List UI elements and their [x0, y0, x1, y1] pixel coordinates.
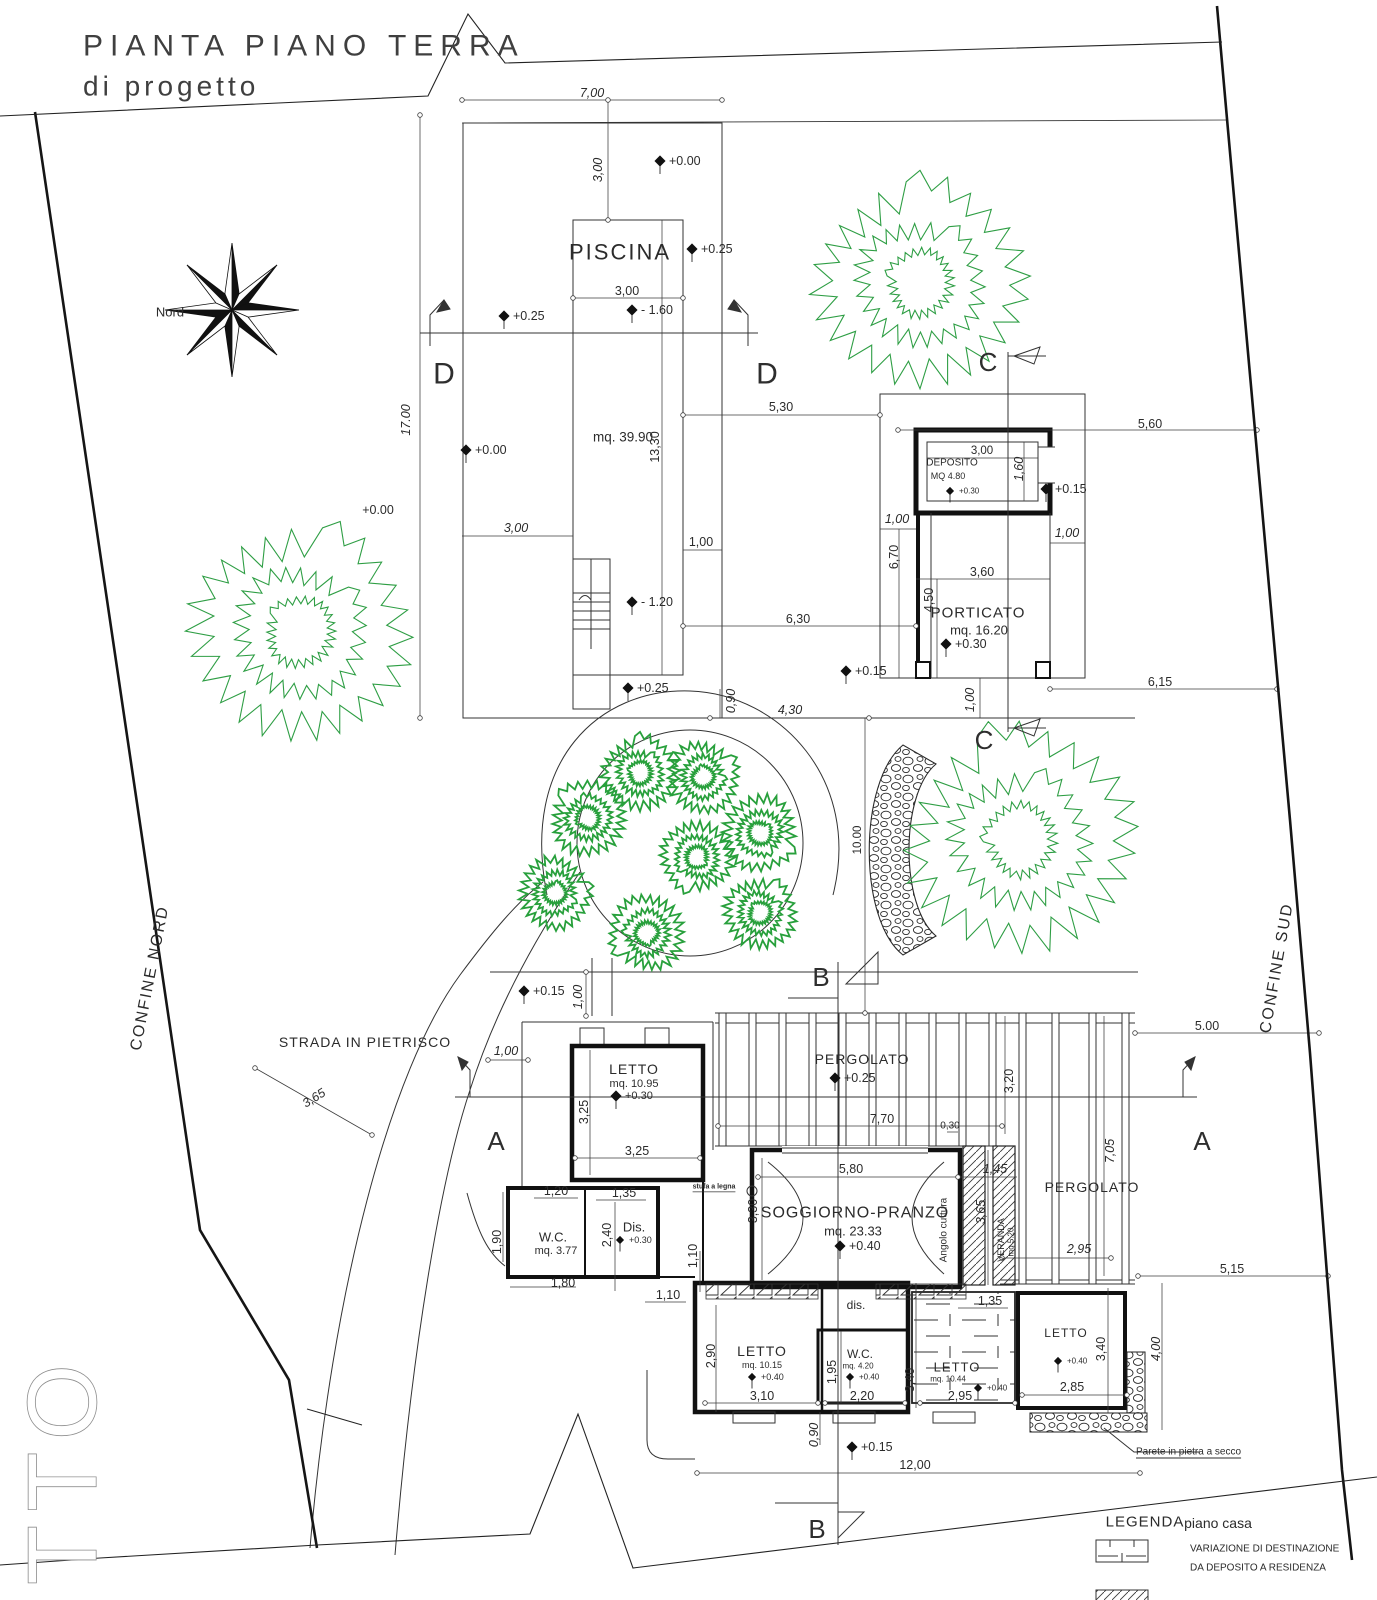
wc2-area: mq. 4.20	[842, 1362, 874, 1371]
legend-symbol-hatch	[1096, 1590, 1148, 1600]
legend-subheading: piano casa	[1184, 1515, 1252, 1531]
dim-030: 0,30	[940, 1121, 960, 1132]
dim-porticato-right: 1,00	[1055, 526, 1079, 540]
soggiorno-area: mq. 23.33	[824, 1224, 882, 1239]
dim-pergola-width: 7,70	[870, 1112, 894, 1126]
level-deposito-out: +0.15	[1055, 482, 1087, 496]
level-wc2: +0.40	[859, 1373, 880, 1382]
compass-label: Nord	[156, 305, 184, 320]
section-c-top: C	[979, 347, 998, 377]
dim-180: 1,80	[551, 1276, 575, 1290]
dis1-label: Dis.	[623, 1220, 645, 1235]
wc1-label: W.C.	[539, 1230, 567, 1245]
level-pool-shallow: - 1.20	[641, 595, 673, 609]
dim-grove-house: 1,00	[571, 985, 585, 1009]
level-porticato-out: +0.15	[855, 664, 887, 678]
level-letto2: +0.40	[761, 1372, 784, 1382]
dim-pool-inner: 3,00	[615, 284, 639, 298]
pergolato1-label: PERGOLATO	[815, 1051, 910, 1067]
window-band	[706, 1284, 818, 1299]
watermark-progetto: PROGETTO	[8, 1350, 117, 1600]
deposito-door-opening	[1041, 447, 1055, 483]
legend-item1-line1: VARIAZIONE DI DESTINAZIONE	[1190, 1544, 1340, 1555]
level-deposito: +0.30	[959, 487, 980, 496]
level-porticato: +0.30	[955, 637, 987, 651]
dim-pool-offset: 3,00	[591, 158, 605, 182]
dim-letto2-v: 2,90	[704, 1344, 718, 1368]
porticato-column	[916, 662, 930, 678]
dim-pool-porticato: 6,30	[786, 612, 810, 626]
dim-porticato-boundary: 6,15	[1148, 675, 1172, 689]
dim-wc1-v: 1,90	[490, 1230, 504, 1254]
dim-deposito-width: 3,00	[971, 445, 993, 457]
dim-boundary-515: 5,15	[1220, 1262, 1244, 1276]
letto4-label: LETTO	[1044, 1326, 1087, 1340]
stufa-label: stufa a legna	[693, 1184, 736, 1191]
page-title-line2: di progetto	[83, 71, 259, 102]
dim-porticato-left: 1,00	[885, 512, 909, 526]
pergolato2-label: PERGOLATO	[1045, 1179, 1140, 1195]
veranda-label: VERANDA	[996, 1218, 1006, 1262]
dim-340-mid: 3,40	[903, 1368, 917, 1392]
dim-porticato-bottom: 1,00	[963, 688, 977, 712]
dim-house-left: 1,00	[494, 1044, 518, 1058]
site-plan-drawing: PIANTA PIANO TERRAdi progettoNordPROGETT…	[0, 0, 1377, 1600]
level-pool-deep: - 1.60	[641, 303, 673, 317]
angolo-cottura-label: Angolo cuttura	[939, 1197, 950, 1262]
dim-court: 10.00	[852, 826, 864, 855]
letto2-area: mq. 10.15	[742, 1360, 782, 1370]
dim-gap-090: 0,90	[724, 689, 738, 713]
dim-pergola2-h: 7,05	[1103, 1139, 1117, 1163]
dim-deck-right: 1,00	[689, 535, 713, 549]
legend-heading: LEGENDA	[1106, 1514, 1185, 1531]
dim-letto4-v: 3,40	[1094, 1337, 1108, 1361]
letto1-area: mq. 10.95	[610, 1078, 659, 1090]
level-dis1: +0.30	[629, 1235, 652, 1245]
section-d-left: D	[433, 358, 455, 391]
dim-letto1-v: 3,25	[577, 1100, 591, 1124]
dim-110-v: 1,10	[686, 1244, 700, 1268]
level-deck-3: +0.25	[637, 681, 669, 695]
dim-135-up: 1,35	[612, 1186, 636, 1200]
pool-label: PISCINA	[569, 240, 671, 265]
paper-background	[0, 0, 1377, 1600]
dim-120: 1,20	[544, 1184, 568, 1198]
section-c-bottom: C	[975, 725, 994, 755]
pool-area: mq. 39.90	[593, 430, 653, 445]
page-title-line1: PIANTA PIANO TERRA	[83, 30, 525, 63]
dis2-label: dis.	[847, 1298, 866, 1312]
dim-pergola2-top: 3,20	[1002, 1069, 1016, 1093]
letto3-area: mq. 10.44	[930, 1375, 966, 1384]
level-ground-1: +0.00	[669, 154, 701, 168]
letto3-label: LETTO	[934, 1360, 981, 1375]
dim-letto4-h: 2,85	[1060, 1380, 1084, 1394]
dim-deposito-depth: 1,60	[1012, 457, 1026, 481]
dim-090-bottom: 0,90	[807, 1423, 821, 1447]
section-b-top: B	[812, 962, 829, 992]
porticato-area: mq. 16.20	[950, 623, 1008, 638]
level-front: +0.15	[861, 1440, 893, 1454]
level-entry: +0.15	[533, 984, 565, 998]
porticato-label: PORTICATO	[931, 605, 1026, 622]
road-label: STRADA IN PIETRISCO	[279, 1034, 451, 1050]
dim-porticato-width: 3,60	[970, 565, 994, 579]
level-letto3: +0.40	[987, 1384, 1008, 1393]
dim-pergola2-w: 2,95	[1066, 1242, 1091, 1256]
dry-stone-wall	[1030, 1413, 1147, 1432]
soggiorno-label: SOGGIORNO-PRANZO	[761, 1205, 949, 1222]
drywall-note: Parete in pietra a secco	[1136, 1447, 1241, 1458]
dim-letto1-h: 3,25	[625, 1144, 649, 1158]
level-deck-1: +0.25	[701, 242, 733, 256]
dim-lot-left: 17.00	[399, 404, 413, 435]
dim-veranda-w: 1,45	[983, 1162, 1007, 1176]
veranda-area: mq 5.20	[1007, 1227, 1016, 1256]
dim-wc2-h: 2,20	[850, 1389, 874, 1403]
letto2-label: LETTO	[737, 1343, 787, 1359]
wc2-label: W.C.	[847, 1347, 873, 1361]
legend-item1-line2: DA DEPOSITO A RESIDENZA	[1190, 1563, 1326, 1574]
dim-135-low: 1,35	[978, 1294, 1002, 1308]
dim-400: 4,00	[1149, 1337, 1163, 1361]
dim-430: 4,30	[778, 703, 802, 717]
dim-soggiorno-h: 3,30	[746, 1199, 760, 1223]
section-d-right: D	[756, 358, 778, 391]
dim-boundary-500: 5.00	[1195, 1019, 1219, 1033]
dim-soggiorno-w: 5,80	[839, 1162, 863, 1176]
dim-letto2-h: 3,10	[750, 1389, 774, 1403]
deposito-label: DEPOSITO	[926, 458, 978, 469]
dim-house-total: 12,00	[899, 1458, 930, 1472]
dim-deck-left: 3,00	[504, 521, 528, 535]
letto1-label: LETTO	[609, 1061, 659, 1077]
section-b-bottom: B	[808, 1514, 825, 1544]
level-letto1: +0.30	[625, 1090, 653, 1102]
section-a-right: A	[1193, 1126, 1211, 1156]
dim-porticato-height: 6,70	[887, 545, 901, 569]
dim-pool-width-top: 7,00	[580, 86, 604, 100]
dim-deposito-boundary: 5,60	[1138, 417, 1162, 431]
level-pergolato1: +0.25	[844, 1071, 876, 1085]
level-ground-3: +0.00	[362, 503, 394, 517]
dim-110-h: 1,10	[656, 1288, 680, 1302]
wc1-area: mq. 3.77	[535, 1245, 578, 1257]
dim-pool-length: 13,30	[648, 431, 662, 462]
deposito-area: MQ 4.80	[931, 471, 966, 481]
dim-dis-v: 2,40	[600, 1223, 614, 1247]
level-letto4: +0.40	[1067, 1357, 1088, 1366]
dim-veranda-h: 3,65	[974, 1200, 988, 1224]
site-plan-canvas: PIANTA PIANO TERRAdi progettoNordPROGETT…	[0, 0, 1377, 1600]
window-band	[876, 1284, 966, 1299]
section-a-left: A	[487, 1126, 505, 1156]
dim-wc2-v: 1,95	[825, 1360, 839, 1384]
dim-letto3-h: 2,95	[948, 1389, 972, 1403]
level-deck-2: +0.25	[513, 309, 545, 323]
dim-pool-deposito: 5,30	[769, 400, 793, 414]
porticato-column	[1036, 662, 1050, 678]
dry-stone-wall	[1127, 1352, 1145, 1420]
level-ground-2: +0.00	[475, 443, 507, 457]
level-soggiorno: +0.40	[849, 1239, 881, 1253]
